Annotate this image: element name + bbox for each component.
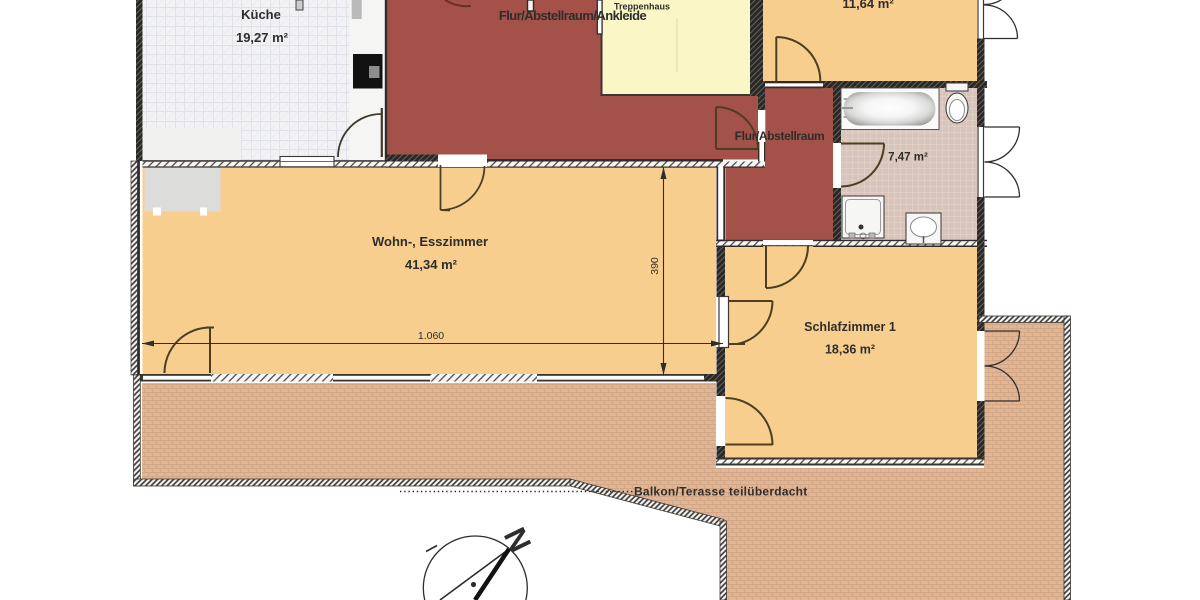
- svg-text:19,27 m²: 19,27 m²: [236, 30, 289, 45]
- svg-text:390: 390: [649, 257, 661, 275]
- svg-text:Küche: Küche: [241, 7, 281, 22]
- svg-text:Wohn-, Esszimmer: Wohn-, Esszimmer: [372, 234, 488, 249]
- svg-text:41,34 m²: 41,34 m²: [405, 257, 458, 272]
- svg-text:Schlafzimmer 1: Schlafzimmer 1: [804, 320, 896, 334]
- svg-text:7,47 m²: 7,47 m²: [888, 152, 928, 164]
- svg-text:Balkon/Terasse teilüberdacht: Balkon/Terasse teilüberdacht: [634, 485, 808, 499]
- svg-text:Flur/Abstellraum: Flur/Abstellraum: [735, 129, 825, 143]
- svg-text:1.060: 1.060: [418, 330, 444, 342]
- svg-text:11,64 m²: 11,64 m²: [842, 0, 894, 11]
- svg-text:18,36 m²: 18,36 m²: [825, 343, 875, 357]
- svg-text:Treppenhaus: Treppenhaus: [614, 2, 670, 12]
